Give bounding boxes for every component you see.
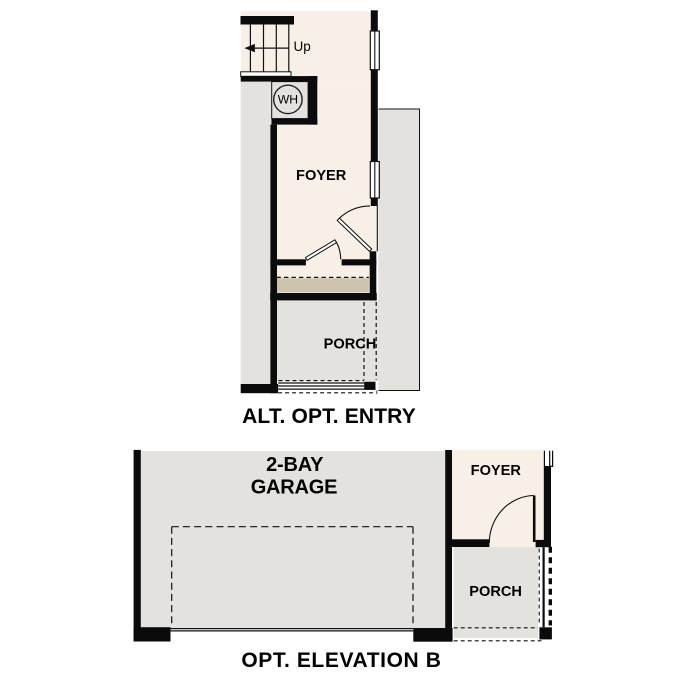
- svg-text:WH: WH: [278, 93, 298, 107]
- svg-text:PORCH: PORCH: [324, 337, 377, 353]
- svg-text:2-BAY: 2-BAY: [266, 454, 324, 476]
- svg-text:FOYER: FOYER: [296, 168, 347, 184]
- svg-text:ALT. OPT. ENTRY: ALT. OPT. ENTRY: [242, 405, 416, 428]
- svg-text:GARAGE: GARAGE: [251, 476, 338, 498]
- svg-text:PORCH: PORCH: [469, 584, 522, 600]
- svg-text:OPT. ELEVATION B: OPT. ELEVATION B: [241, 649, 441, 672]
- svg-text:FOYER: FOYER: [471, 463, 522, 479]
- svg-text:Up: Up: [294, 39, 311, 54]
